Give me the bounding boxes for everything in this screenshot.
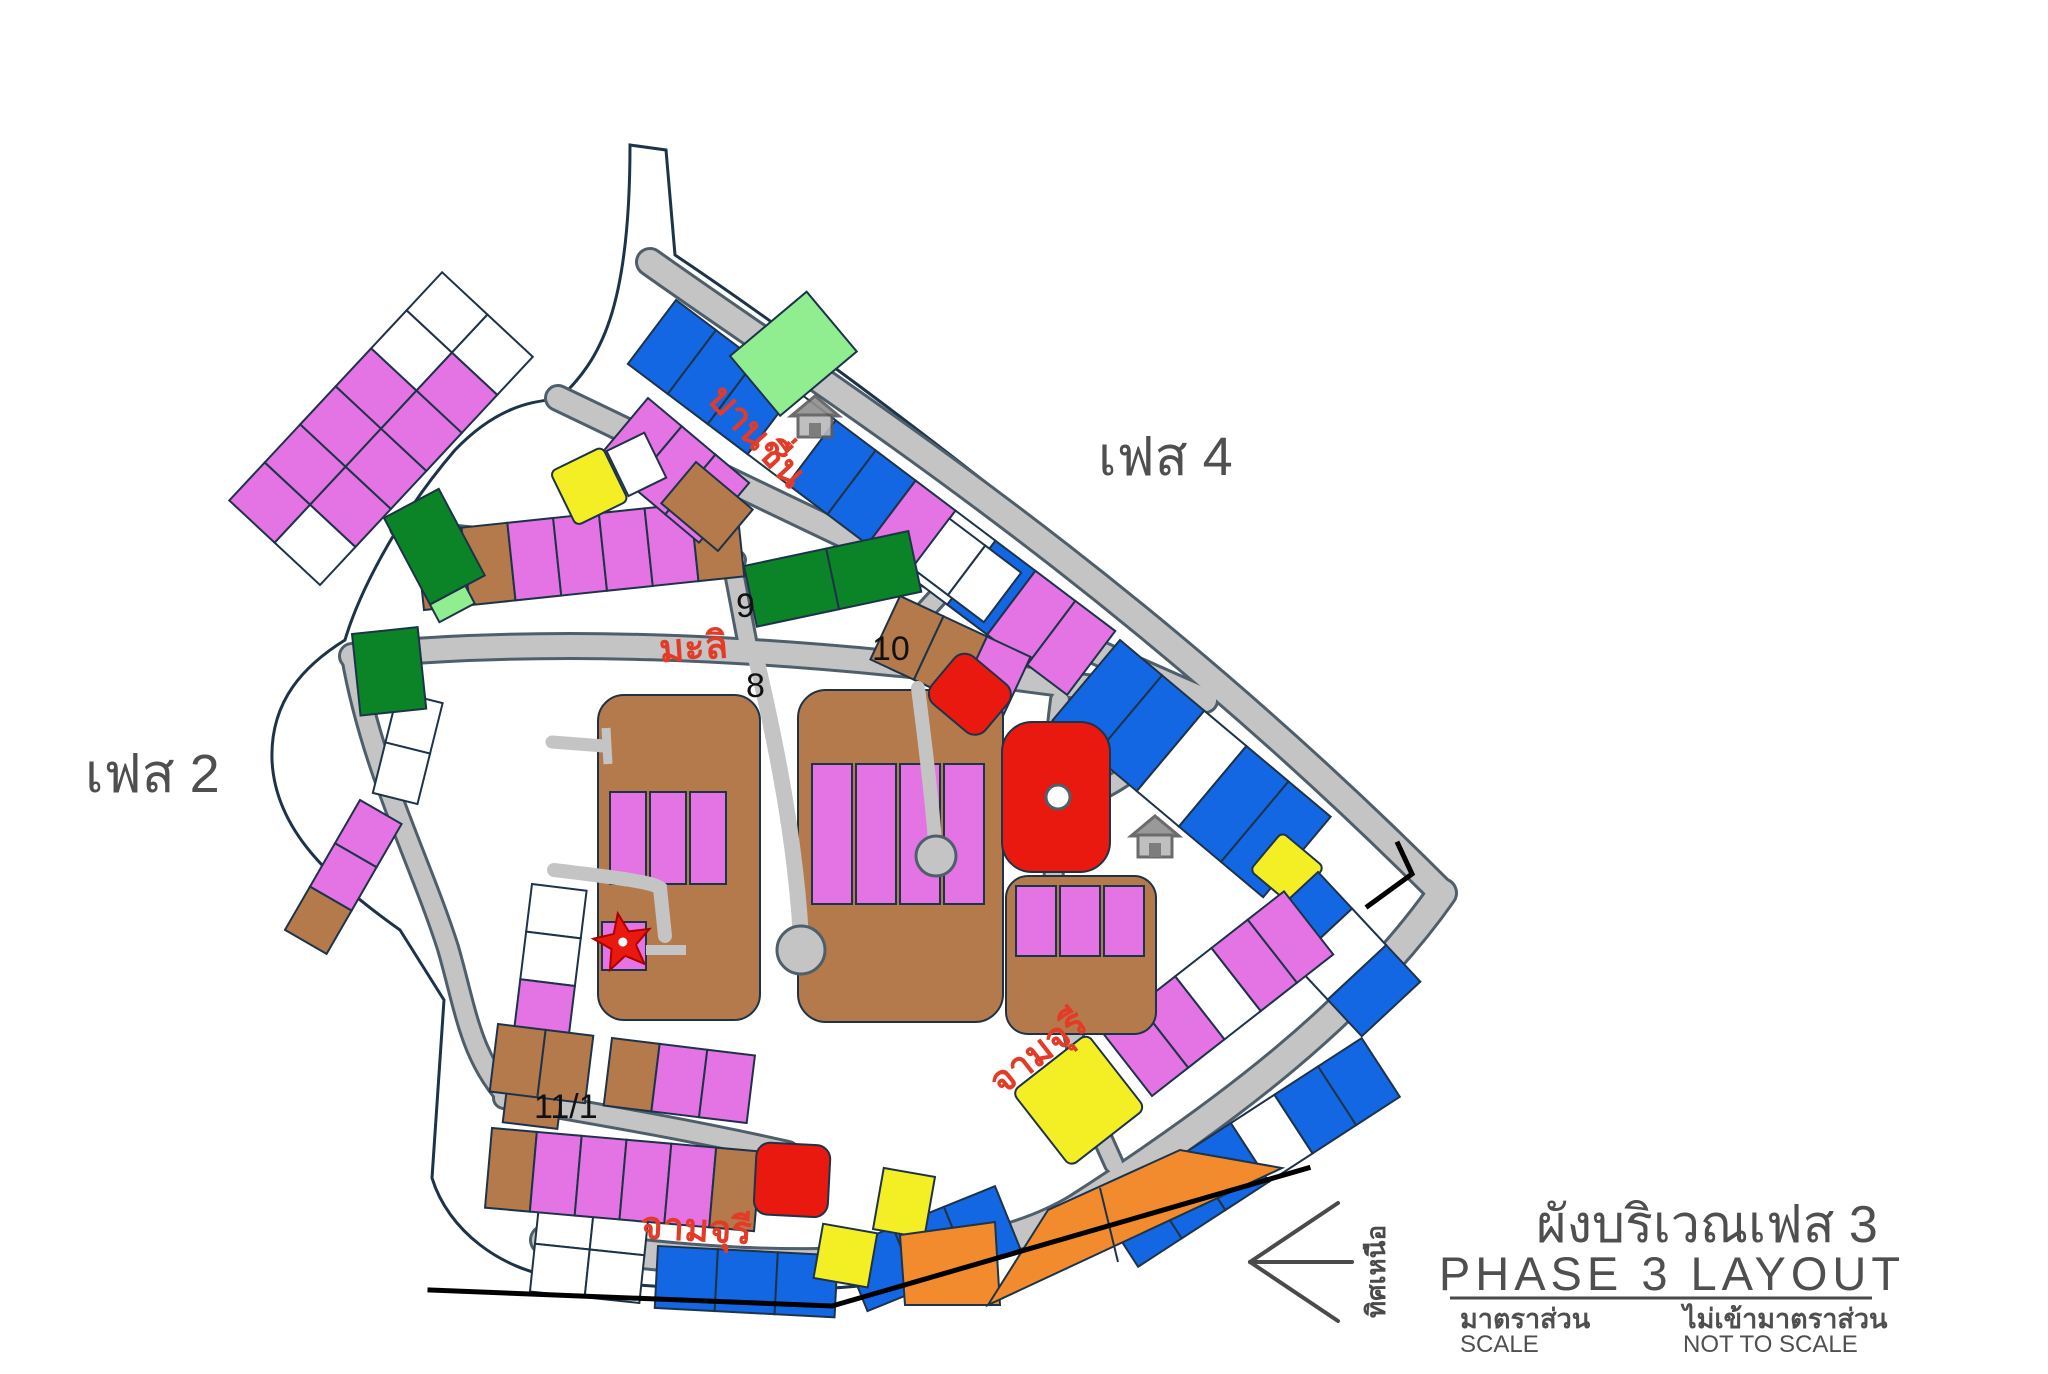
house-icon <box>1131 816 1179 857</box>
scale-label-thai: มาตราส่วน <box>1460 1304 1591 1334</box>
lot-block <box>798 690 1003 1022</box>
north-label: ทิศเหนือ <box>1361 1225 1391 1318</box>
site-plan-map: เฟส 4 เฟส 2 บานชื่น มะลิ จามจุรี จามจุรี… <box>0 0 2048 1374</box>
lot-block <box>285 800 402 954</box>
north-arrow: ทิศเหนือ <box>1250 1203 1391 1321</box>
phase3-layout-page: เฟส 4 เฟส 2 บานชื่น มะลิ จามจุรี จามจุรี… <box>0 0 2048 1374</box>
junction-number-9: 9 <box>736 587 755 625</box>
title-thai: ผังบริเวณเฟส 3 <box>1536 1196 1878 1254</box>
street-label-chamchuri-south: จามจุรี <box>639 1205 753 1255</box>
title-english: PHASE 3 LAYOUT <box>1439 1247 1905 1300</box>
lot-block <box>598 695 760 1020</box>
scale-label-english: SCALE <box>1460 1331 1539 1358</box>
red-lot <box>753 1142 831 1218</box>
phase4-label: เฟส 4 <box>1098 427 1233 487</box>
junction-number-8: 8 <box>746 667 765 705</box>
scale-value-thai: ไม่เข้ามาตราส่วน <box>1680 1303 1888 1334</box>
street-label-mali: มะลิ <box>658 624 730 671</box>
scale-value-english: NOT TO SCALE <box>1683 1331 1858 1358</box>
junction-number-10: 10 <box>872 630 910 668</box>
lot-block <box>352 627 426 715</box>
lot-block <box>1006 876 1156 1034</box>
junction-number-11-1: 11/1 <box>534 1088 598 1126</box>
phase2-label: เฟส 2 <box>85 744 220 804</box>
title-block: ผังบริเวณเฟส 3 PHASE 3 LAYOUT มาตราส่วน … <box>1439 1196 1905 1358</box>
